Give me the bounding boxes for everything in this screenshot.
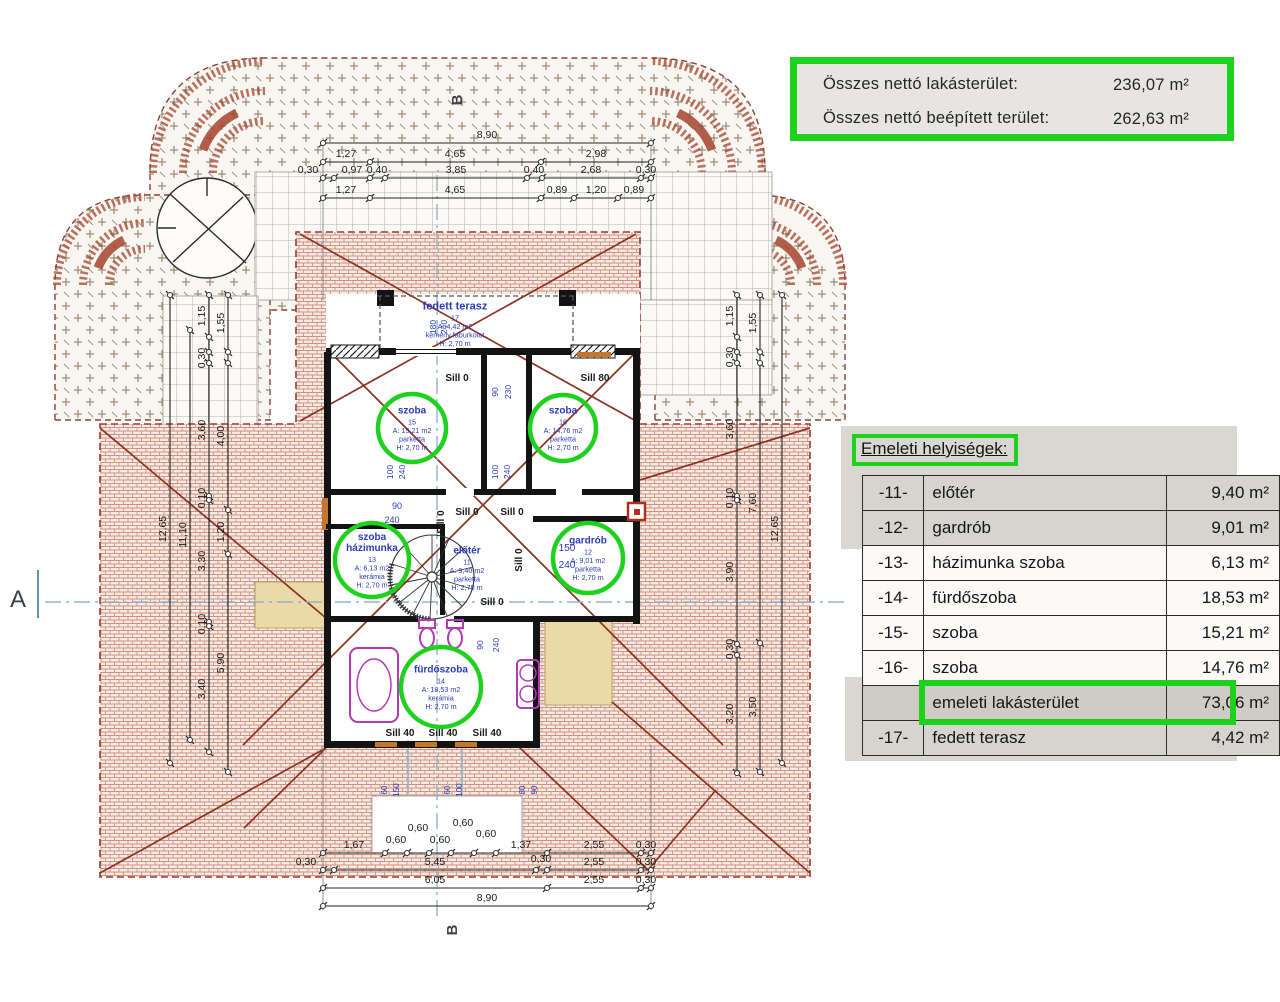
room-area-cell: 9,01 m²	[1167, 511, 1280, 546]
plan-annotation: 80	[518, 785, 527, 794]
room-area-cell: 18,53 m²	[1167, 581, 1280, 616]
svg-text:150: 150	[392, 783, 401, 797]
plan-annotation: Sill 40	[429, 728, 458, 739]
svg-text:1,55: 1,55	[747, 313, 759, 334]
dimension-row: 8,90	[319, 892, 655, 910]
room-number-cell: -12-	[863, 511, 924, 546]
svg-text:0,60: 0,60	[430, 834, 451, 846]
svg-text:Sill 40: Sill 40	[473, 728, 502, 739]
room-area-cell: 6,13 m²	[1167, 546, 1280, 581]
plan-annotation: 90	[475, 640, 485, 650]
svg-text:0,60: 0,60	[453, 817, 474, 829]
section-marker: A	[10, 586, 26, 613]
svg-text:Sill 40: Sill 40	[429, 728, 458, 739]
svg-text:100: 100	[385, 465, 395, 479]
svg-text:1,37: 1,37	[511, 839, 532, 851]
plan-annotation: Sill 40	[386, 728, 415, 739]
svg-text:előtér: előtér	[453, 545, 480, 556]
total-net-builtup-value: 262,63 m²	[1113, 110, 1189, 129]
svg-text:5,45: 5,45	[425, 856, 446, 868]
svg-text:80: 80	[518, 785, 527, 794]
room-number-cell: -11-	[863, 476, 924, 511]
room-name-cell: fedett terasz	[924, 721, 1167, 756]
svg-text:0,30: 0,30	[724, 347, 736, 368]
plan-annotation: 100	[490, 465, 500, 479]
plan-annotation: 240	[502, 465, 512, 479]
svg-text:2,98: 2,98	[586, 148, 607, 160]
svg-text:0,30: 0,30	[196, 348, 208, 369]
plan-annotation: Sill 0	[480, 597, 504, 608]
svg-text:0,60: 0,60	[408, 822, 429, 834]
svg-text:0,10: 0,10	[196, 488, 208, 509]
svg-text:0,30: 0,30	[298, 164, 319, 176]
svg-text:szoba: szoba	[398, 405, 427, 416]
svg-text:8,90: 8,90	[477, 129, 498, 141]
svg-text:szoba: szoba	[549, 405, 578, 416]
svg-text:1,27: 1,27	[336, 184, 357, 196]
svg-text:90: 90	[530, 785, 539, 794]
svg-text:Sill 0: Sill 0	[436, 510, 447, 534]
svg-text:240: 240	[397, 465, 407, 479]
svg-text:1,15: 1,15	[196, 306, 208, 327]
svg-text:H: 2,70 m: H: 2,70 m	[425, 702, 456, 711]
svg-text:1,67: 1,67	[344, 839, 365, 851]
svg-text:3,20: 3,20	[724, 704, 736, 725]
svg-text:230: 230	[503, 385, 513, 399]
svg-text:100: 100	[490, 465, 500, 479]
svg-text:2,55: 2,55	[584, 856, 605, 868]
room-label: előtér11A: 9,40 m2parkettaH: 2,70 m	[450, 545, 485, 592]
svg-text:3,50: 3,50	[747, 697, 759, 718]
svg-text:2,55: 2,55	[584, 874, 605, 886]
plan-annotation: 90	[490, 387, 500, 397]
room-number-cell	[863, 686, 924, 721]
plan-annotation: 60	[380, 785, 389, 794]
plan-annotation: 100	[385, 465, 395, 479]
svg-text:2,68: 2,68	[581, 164, 602, 176]
room-name-cell: szoba	[924, 616, 1167, 651]
svg-text:H: 2,70 m: H: 2,70 m	[547, 443, 578, 452]
svg-text:3,40: 3,40	[196, 679, 208, 700]
svg-text:12,65: 12,65	[769, 516, 781, 542]
plan-annotation: Sill 0	[455, 507, 479, 518]
svg-text:Sill 0: Sill 0	[455, 507, 479, 518]
svg-text:Sill 0: Sill 0	[445, 373, 469, 384]
svg-text:0,30: 0,30	[636, 839, 657, 851]
svg-text:90: 90	[392, 501, 402, 511]
svg-text:0,30: 0,30	[636, 874, 657, 886]
floor-table-row: -12-gardrób9,01 m²	[863, 511, 1280, 546]
floor-table-row: -11-előtér9,40 m²	[863, 476, 1280, 511]
floor-table-row: -13-házimunka szoba6,13 m²	[863, 546, 1280, 581]
svg-text:házimunka: házimunka	[346, 543, 398, 554]
svg-text:1,15: 1,15	[724, 306, 736, 327]
plan-annotation: 240	[384, 515, 399, 525]
totals-box: Összes nettó lakásterület: 236,07 m² Öss…	[790, 57, 1234, 141]
svg-text:11,10: 11,10	[177, 522, 189, 548]
svg-text:Sill 80: Sill 80	[581, 373, 610, 384]
room-number-cell: -13-	[863, 546, 924, 581]
plan-annotation: Sill 0	[514, 548, 525, 572]
room-name-cell: fürdőszoba	[924, 581, 1167, 616]
svg-text:3,30: 3,30	[196, 551, 208, 572]
svg-text:A: A	[10, 586, 26, 613]
svg-text:0,89: 0,89	[547, 184, 568, 196]
section-marker: B	[444, 924, 461, 935]
plan-annotation: Sill 40	[473, 728, 502, 739]
svg-text:H: 2,70 m: H: 2,70 m	[451, 583, 482, 592]
svg-text:H: 2,70 m: H: 2,70 m	[439, 339, 470, 348]
svg-text:240: 240	[384, 515, 399, 525]
plan-annotation: Sill 0	[436, 510, 447, 534]
svg-text:0,30: 0,30	[531, 853, 552, 865]
chimney-symbol	[628, 503, 645, 520]
svg-text:H: 2,70 m: H: 2,70 m	[356, 581, 387, 590]
section-marker: B	[449, 94, 466, 105]
svg-text:0,10: 0,10	[724, 488, 736, 509]
svg-text:H: 2,70 m: H: 2,70 m	[572, 573, 603, 582]
svg-text:5,90: 5,90	[215, 653, 227, 674]
svg-text:B: B	[449, 94, 466, 105]
room-number-cell: -15-	[863, 616, 924, 651]
room-name-cell: előtér	[924, 476, 1167, 511]
svg-text:Sill 40: Sill 40	[386, 728, 415, 739]
svg-text:1,20: 1,20	[215, 522, 227, 543]
svg-text:90: 90	[475, 640, 485, 650]
svg-text:0,60: 0,60	[476, 828, 497, 840]
svg-text:fürdőszoba: fürdőszoba	[414, 664, 468, 675]
floor-table-row: -14-fürdőszoba18,53 m²	[863, 581, 1280, 616]
plan-annotation: 90	[530, 785, 539, 794]
total-net-builtup-label: Összes nettó beépített terület:	[823, 109, 1049, 128]
plan-annotation: 90	[392, 501, 402, 511]
svg-text:0,30: 0,30	[636, 164, 657, 176]
svg-text:240: 240	[502, 465, 512, 479]
room-number-cell: -14-	[863, 581, 924, 616]
svg-text:B: B	[444, 924, 461, 935]
floor-table-row: -15-szoba15,21 m²	[863, 616, 1280, 651]
svg-text:0,89: 0,89	[624, 184, 645, 196]
svg-text:0,60: 0,60	[386, 834, 407, 846]
svg-text:1,20: 1,20	[586, 184, 607, 196]
svg-text:8,90: 8,90	[477, 892, 498, 904]
svg-text:7,60: 7,60	[747, 493, 759, 514]
room-area-cell: 9,40 m²	[1167, 476, 1280, 511]
room-name-cell: házimunka szoba	[924, 546, 1167, 581]
svg-text:0,40: 0,40	[524, 164, 545, 176]
svg-text:2,55: 2,55	[584, 839, 605, 851]
svg-text:12,65: 12,65	[157, 516, 169, 542]
plan-annotation: 150	[392, 783, 401, 797]
svg-text:4,65: 4,65	[445, 184, 466, 196]
svg-text:0,97: 0,97	[342, 164, 363, 176]
plan-annotation: Sill 0	[445, 373, 469, 384]
plan-annotation: Sill 0	[500, 507, 524, 518]
plan-annotation: Sill 80	[581, 373, 610, 384]
svg-text:240: 240	[491, 638, 501, 652]
plan-annotation: 240	[491, 638, 501, 652]
svg-text:4,00: 4,00	[215, 426, 227, 447]
svg-text:0,40: 0,40	[367, 164, 388, 176]
svg-text:60: 60	[443, 785, 452, 794]
total-net-living-label: Összes nettó lakásterület:	[823, 75, 1018, 94]
svg-text:0,30: 0,30	[636, 856, 657, 868]
floor-area-highlight-frame	[919, 680, 1236, 725]
svg-text:szoba: szoba	[358, 532, 387, 543]
svg-text:6,05: 6,05	[425, 874, 446, 886]
room-area-cell: 4,42 m²	[1167, 721, 1280, 756]
svg-text:Sill 0: Sill 0	[500, 507, 524, 518]
total-net-living-value: 236,07 m²	[1113, 76, 1189, 95]
room-number-cell: -16-	[863, 651, 924, 686]
svg-text:0,30: 0,30	[296, 856, 317, 868]
svg-text:100: 100	[455, 783, 464, 797]
floor-table-title: Emeleti helyiségek:	[852, 434, 1018, 466]
floor-table-row: -17-fedett terasz4,42 m²	[863, 721, 1280, 756]
svg-text:3,60: 3,60	[196, 420, 208, 441]
blueprint-page: 8,901,274,652,980,300,970,403,850,402,68…	[0, 0, 1280, 1002]
plan-annotation: 230	[503, 385, 513, 399]
svg-text:3,85: 3,85	[446, 164, 467, 176]
svg-text:H: 2,70 m: H: 2,70 m	[396, 443, 427, 452]
svg-text:0,10: 0,10	[196, 614, 208, 635]
plan-annotation: 240	[397, 465, 407, 479]
svg-text:1,27: 1,27	[336, 148, 357, 160]
tree-icon	[157, 178, 257, 278]
svg-text:90: 90	[490, 387, 500, 397]
plan-annotation: 60	[443, 785, 452, 794]
svg-text:fedett terasz: fedett terasz	[423, 300, 488, 312]
plan-annotation: 100	[455, 783, 464, 797]
svg-text:4,65: 4,65	[445, 148, 466, 160]
svg-text:Sill 0: Sill 0	[480, 597, 504, 608]
svg-text:3,60: 3,60	[724, 419, 736, 440]
svg-text:0,30: 0,30	[724, 639, 736, 660]
room-area-cell: 15,21 m²	[1167, 616, 1280, 651]
svg-text:60: 60	[380, 785, 389, 794]
svg-text:gardrób: gardrób	[569, 535, 607, 546]
svg-text:Sill 0: Sill 0	[514, 548, 525, 572]
svg-text:1,55: 1,55	[215, 313, 227, 334]
room-name-cell: gardrób	[924, 511, 1167, 546]
room-number-cell: -17-	[863, 721, 924, 756]
svg-text:3,90: 3,90	[724, 562, 736, 583]
